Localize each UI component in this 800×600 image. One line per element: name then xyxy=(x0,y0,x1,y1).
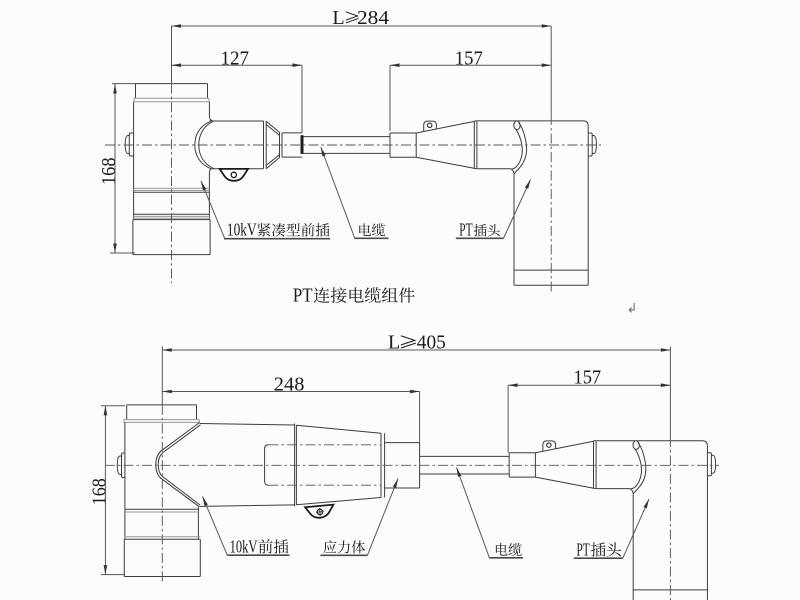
svg-text:L: L xyxy=(388,331,400,353)
svg-text:PT: PT xyxy=(293,285,313,307)
svg-text:↲: ↲ xyxy=(627,301,638,316)
svg-text:157: 157 xyxy=(455,48,483,70)
svg-text:127: 127 xyxy=(221,48,250,70)
svg-text:248: 248 xyxy=(274,373,305,395)
svg-text:PT: PT xyxy=(577,539,590,559)
svg-text:168: 168 xyxy=(89,478,111,505)
svg-text:405: 405 xyxy=(417,331,446,353)
svg-text:284: 284 xyxy=(357,7,389,29)
svg-text:PT: PT xyxy=(459,219,472,239)
svg-text:157: 157 xyxy=(574,367,602,389)
svg-text:10kV: 10kV xyxy=(230,536,258,556)
svg-text:168: 168 xyxy=(98,158,120,186)
svg-text:10kV: 10kV xyxy=(227,219,257,239)
svg-text:L: L xyxy=(332,7,344,29)
